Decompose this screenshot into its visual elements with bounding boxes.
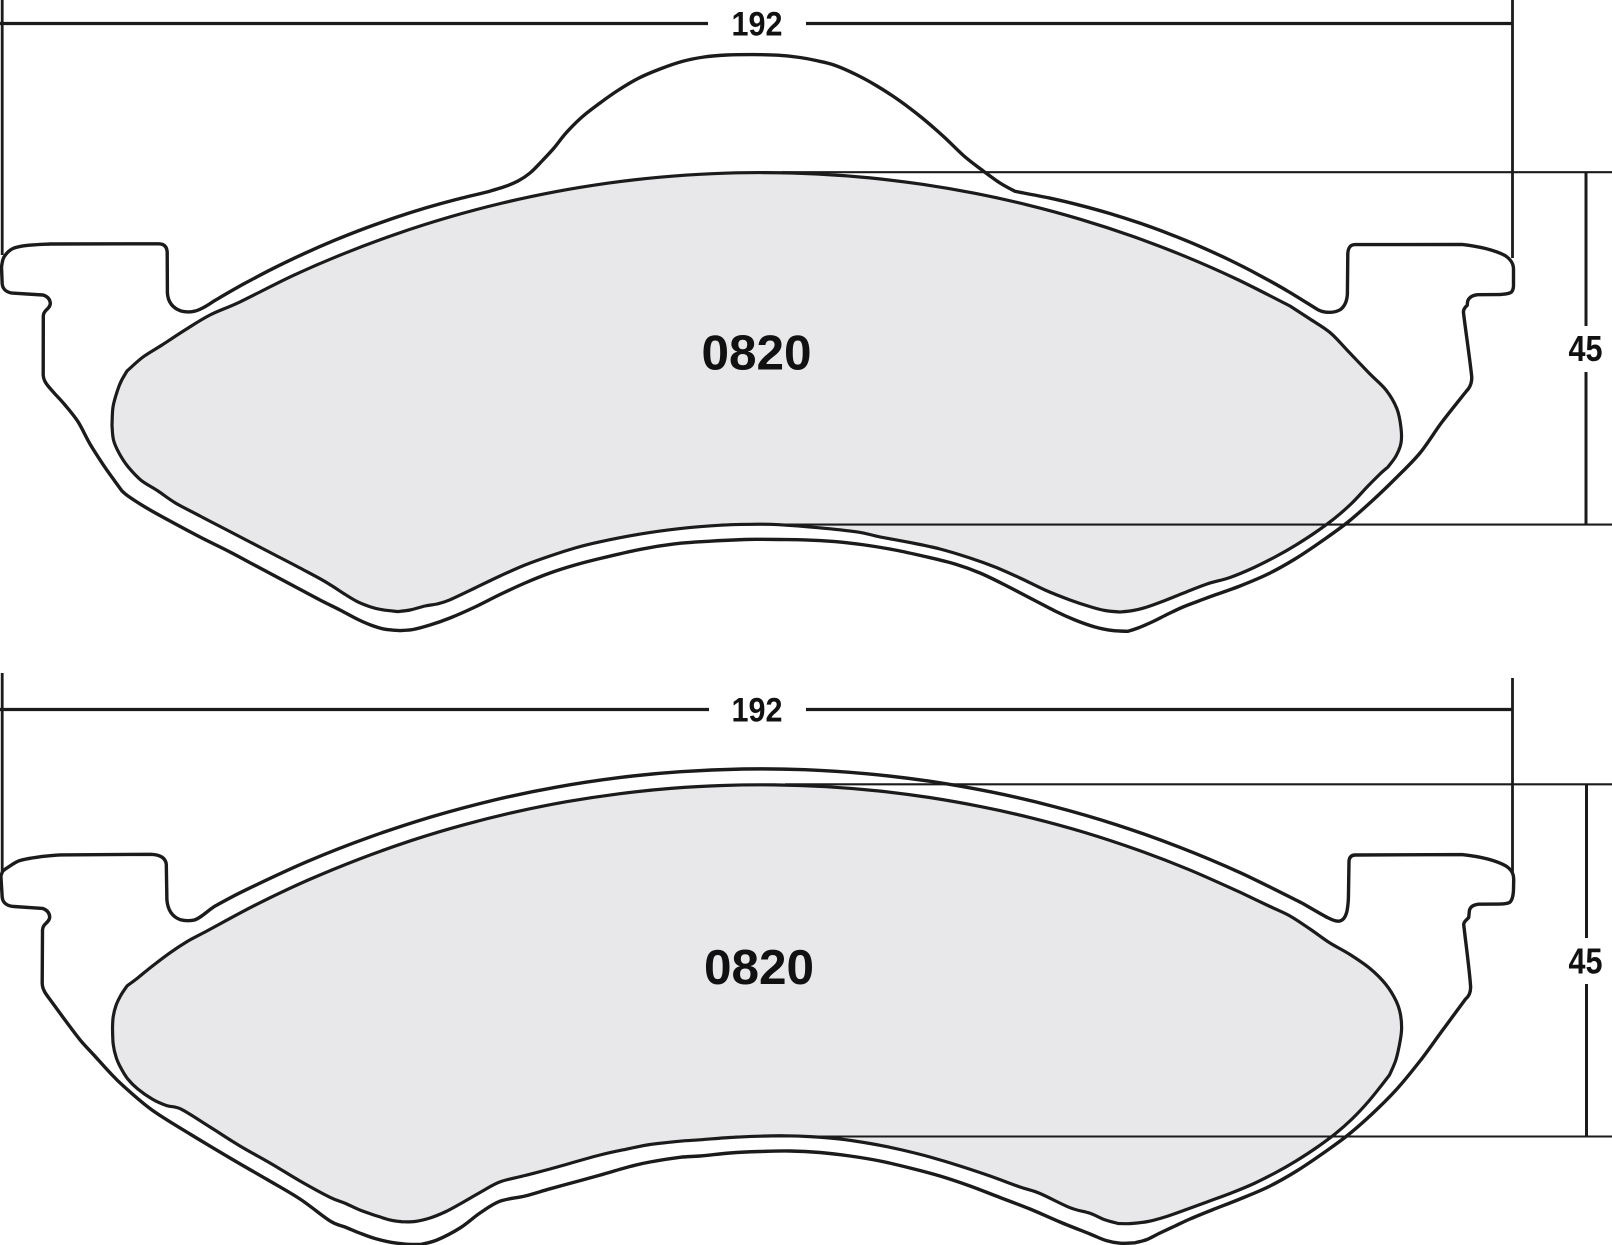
svg-text:192: 192 [732, 6, 783, 44]
svg-text:192: 192 [732, 692, 783, 730]
svg-text:45: 45 [1569, 941, 1603, 982]
svg-text:0820: 0820 [704, 940, 814, 995]
svg-text:45: 45 [1569, 328, 1603, 369]
svg-text:0820: 0820 [701, 326, 811, 381]
